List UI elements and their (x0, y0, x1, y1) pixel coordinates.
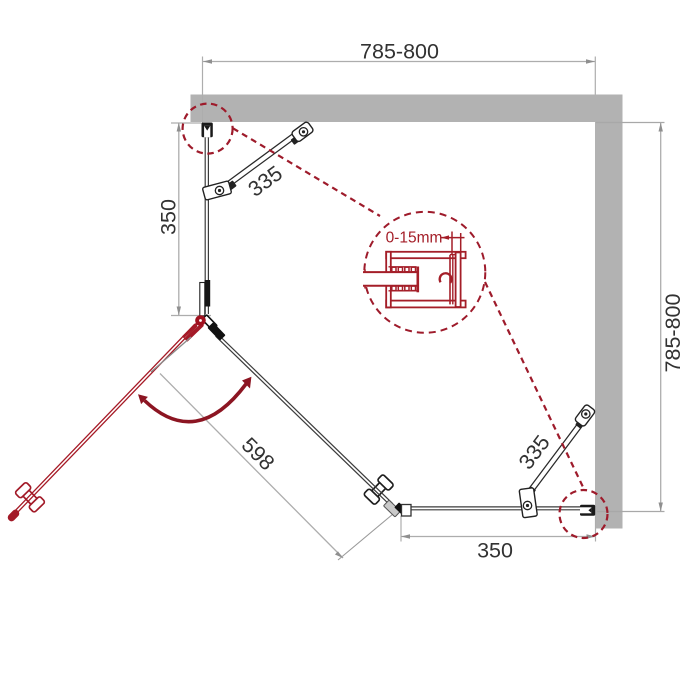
svg-text:785-800: 785-800 (661, 294, 685, 373)
svg-text:350: 350 (477, 539, 513, 563)
svg-text:785-800: 785-800 (360, 40, 439, 64)
svg-text:350: 350 (157, 199, 181, 235)
svg-text:0-15mm: 0-15mm (386, 230, 443, 247)
